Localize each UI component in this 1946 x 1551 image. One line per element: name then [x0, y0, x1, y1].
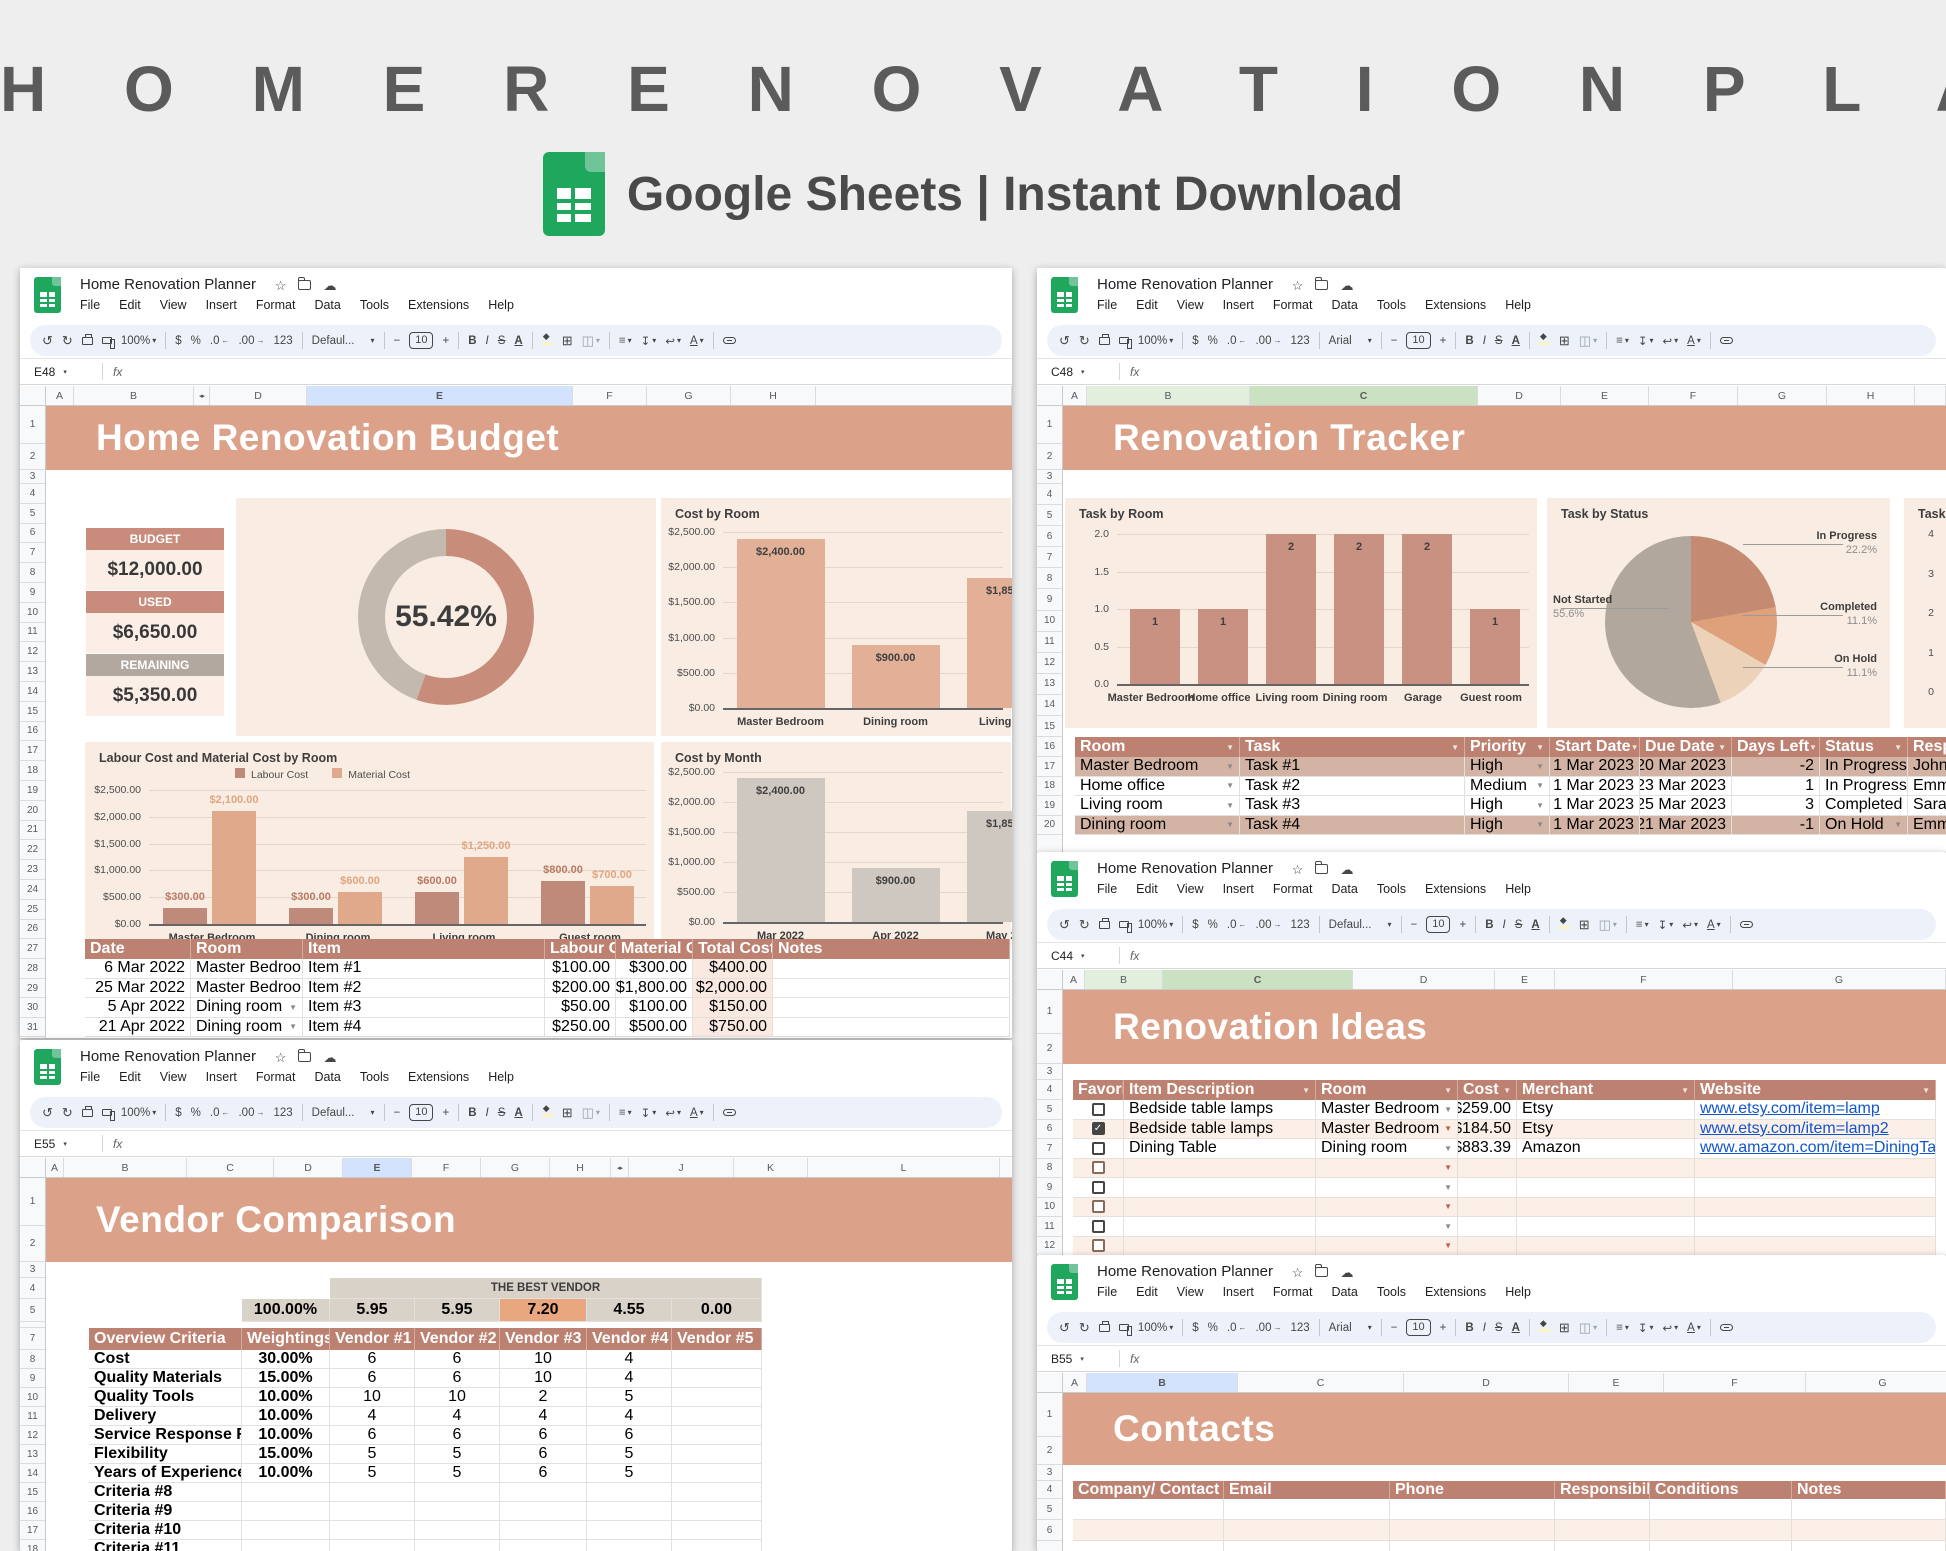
row-number[interactable]: 13 [1037, 674, 1062, 695]
table-cell[interactable]: John [1908, 757, 1946, 777]
name-box[interactable]: E55▾ [20, 1137, 92, 1151]
text-wrap-icon[interactable]: ↩ ▾ [1663, 334, 1679, 348]
table-cell[interactable]: Quality Materials [89, 1369, 242, 1388]
table-cell[interactable]: $150.00 [693, 998, 773, 1018]
more-number-formats-icon[interactable]: 123 [273, 335, 292, 347]
print-icon[interactable] [82, 1109, 93, 1117]
row-number[interactable]: 2 [1037, 1437, 1062, 1465]
dropdown-icon[interactable]: ▼ [1536, 801, 1544, 810]
text-color-icon[interactable]: A [1531, 919, 1539, 931]
row-number[interactable]: 26 [20, 920, 45, 940]
percent-format-icon[interactable]: % [1208, 1322, 1218, 1334]
table-cell[interactable]: $1,800.00 [616, 979, 693, 999]
vendor-score-cell[interactable]: 5.95 [415, 1299, 500, 1322]
table-cell[interactable] [1224, 1541, 1390, 1551]
insert-link-icon[interactable] [723, 1109, 736, 1116]
filter-icon[interactable]: ▼ [1226, 743, 1234, 752]
table-header-cell[interactable]: Room▼ [1316, 1080, 1458, 1100]
menu-item-extensions[interactable]: Extensions [1425, 882, 1486, 896]
dropdown-icon[interactable]: ▼ [1444, 1222, 1452, 1231]
table-cell[interactable] [330, 1521, 415, 1540]
font-select[interactable]: Defaul... ▾ [1329, 919, 1392, 931]
filter-icon[interactable]: ▼ [1922, 1086, 1930, 1095]
table-cell[interactable] [500, 1521, 587, 1540]
table-cell[interactable]: 4 [587, 1407, 672, 1426]
dropdown-icon[interactable]: ▼ [1444, 1124, 1452, 1133]
table-cell[interactable] [1555, 1520, 1650, 1541]
table-cell[interactable] [1224, 1520, 1390, 1541]
paint-format-icon[interactable] [1119, 337, 1129, 344]
table-cell[interactable] [1124, 1198, 1316, 1218]
decrease-font-size-icon[interactable]: − [394, 335, 401, 347]
dropdown-icon[interactable]: ▼ [1444, 1183, 1452, 1192]
table-cell[interactable] [1073, 1139, 1124, 1159]
row-number[interactable]: 1 [20, 406, 45, 444]
column-header-C[interactable]: C [187, 1158, 274, 1177]
row-number[interactable]: 3 [20, 470, 45, 484]
table-cell[interactable] [1650, 1499, 1792, 1520]
table-header-cell[interactable]: Responsible▼ [1908, 737, 1946, 757]
table-cell[interactable]: 4 [500, 1407, 587, 1426]
menu-item-view[interactable]: View [160, 1070, 187, 1084]
row-number[interactable]: 4 [1037, 484, 1062, 505]
table-cell[interactable] [1458, 1198, 1517, 1218]
dropdown-icon[interactable]: ▼ [1226, 801, 1234, 810]
table-cell[interactable]: ▼ [1316, 1159, 1458, 1179]
table-cell[interactable]: 6 [330, 1426, 415, 1445]
table-cell[interactable] [587, 1483, 672, 1502]
table-cell[interactable] [242, 1540, 330, 1551]
merge-cells-icon[interactable]: ◫▾ [1579, 333, 1597, 349]
increase-decimals-icon[interactable]: .00→ [1255, 1322, 1281, 1334]
column-header-F[interactable]: F [1649, 386, 1738, 405]
name-box[interactable]: B55▾ [1037, 1352, 1109, 1366]
table-cell[interactable] [672, 1521, 762, 1540]
menu-item-extensions[interactable]: Extensions [408, 1070, 469, 1084]
table-cell[interactable]: 10.00% [242, 1464, 330, 1483]
table-header-cell[interactable]: Vendor #4 [587, 1328, 672, 1350]
table-header-cell[interactable]: Vendor #3 [500, 1328, 587, 1350]
row-number[interactable]: 25 [20, 900, 45, 920]
text-wrap-icon[interactable]: ↩ ▾ [665, 334, 681, 348]
menu-item-edit[interactable]: Edit [1136, 298, 1158, 312]
decrease-font-size-icon[interactable]: − [1391, 335, 1398, 347]
table-cell[interactable]: 6 [330, 1350, 415, 1369]
strikethrough-icon[interactable]: S [1515, 919, 1523, 931]
row-number[interactable]: 17 [20, 741, 45, 761]
font-select[interactable]: Arial ▾ [1329, 335, 1372, 347]
column-header-F[interactable]: F [1664, 1373, 1806, 1392]
table-cell[interactable]: 20 Mar 2023 [1640, 757, 1732, 777]
table-cell[interactable]: Item #3 [303, 998, 545, 1018]
table-cell[interactable]: 10 [330, 1388, 415, 1407]
dropdown-icon[interactable]: ▼ [1226, 781, 1234, 790]
undo-icon[interactable]: ↺ [1059, 1320, 1070, 1336]
print-icon[interactable] [1099, 921, 1110, 929]
table-header-cell[interactable]: Date [85, 939, 191, 959]
table-cell[interactable] [773, 979, 1010, 999]
menu-item-format[interactable]: Format [256, 298, 296, 312]
undo-icon[interactable]: ↺ [1059, 917, 1070, 933]
column-header-J[interactable]: J [629, 1158, 734, 1177]
bold-icon[interactable]: B [468, 1107, 476, 1119]
table-header-cell[interactable]: Responsibilities [1555, 1481, 1650, 1499]
table-cell[interactable]: Completed▼ [1820, 796, 1908, 816]
table-cell[interactable] [1073, 1100, 1124, 1120]
row-number[interactable]: 29 [20, 979, 45, 999]
font-select[interactable]: Defaul... ▾ [312, 335, 375, 347]
column-header-B[interactable]: B [1087, 1373, 1238, 1392]
table-cell[interactable]: 5 [587, 1388, 672, 1407]
row-number[interactable]: 20 [1037, 816, 1062, 836]
column-header-G[interactable]: G [647, 386, 731, 405]
table-cell[interactable]: Dining room▼ [1316, 1139, 1458, 1159]
decrease-font-size-icon[interactable]: − [1391, 1322, 1398, 1334]
table-cell[interactable]: 25 Mar 2022 [85, 979, 191, 999]
table-cell[interactable]: Dining room▼ [191, 1018, 303, 1038]
table-cell[interactable]: 30.00% [242, 1350, 330, 1369]
table-cell[interactable] [1792, 1520, 1946, 1541]
row-number[interactable]: 15 [20, 1483, 45, 1502]
row-number[interactable]: 8 [1037, 1159, 1062, 1179]
table-cell[interactable]: 6 [330, 1369, 415, 1388]
row-number[interactable]: 30 [20, 998, 45, 1018]
column-header-D[interactable]: D [210, 386, 307, 405]
table-header-cell[interactable]: Phone [1390, 1481, 1555, 1499]
row-number[interactable]: 12 [20, 642, 45, 662]
table-cell[interactable]: 6 [587, 1426, 672, 1445]
table-cell[interactable]: $500.00 [616, 1018, 693, 1038]
row-number[interactable]: 6 [1037, 526, 1062, 547]
dropdown-icon[interactable]: ▼ [1226, 762, 1234, 771]
row-number[interactable]: 11 [20, 623, 45, 643]
table-cell[interactable] [1073, 1499, 1224, 1520]
merge-cells-icon[interactable]: ◫▾ [1599, 917, 1617, 933]
table-cell[interactable]: In Progress▼ [1820, 777, 1908, 797]
vendor-score-cell[interactable]: 100.00% [242, 1299, 330, 1322]
table-cell[interactable]: 6 [415, 1350, 500, 1369]
table-cell[interactable]: In Progress▼ [1820, 757, 1908, 777]
table-cell[interactable]: Task #2 [1240, 777, 1465, 797]
table-cell[interactable] [672, 1407, 762, 1426]
row-number[interactable]: 14 [1037, 695, 1062, 716]
table-cell[interactable] [1073, 1217, 1124, 1237]
table-cell[interactable] [500, 1540, 587, 1551]
insert-link-icon[interactable] [1720, 1324, 1733, 1331]
column-header-E[interactable]: E [1495, 970, 1555, 989]
redo-icon[interactable]: ↻ [1079, 333, 1090, 349]
decrease-decimals-icon[interactable]: .0← [210, 335, 230, 347]
row-number[interactable]: 3 [1037, 1064, 1062, 1080]
table-cell[interactable]: Task #4 [1240, 816, 1465, 836]
column-header-C[interactable]: C [1238, 1373, 1404, 1392]
row-number[interactable]: 2 [20, 444, 45, 470]
menu-item-format[interactable]: Format [256, 1070, 296, 1084]
table-cell[interactable]: 4 [587, 1350, 672, 1369]
text-color-icon[interactable]: A [514, 1107, 522, 1119]
table-cell[interactable] [1695, 1178, 1936, 1198]
row-number[interactable]: 5 [1037, 505, 1062, 526]
table-cell[interactable]: -2 [1732, 757, 1820, 777]
table-cell[interactable]: ▼ [1316, 1178, 1458, 1198]
table-header-cell[interactable]: Vendor #5 [672, 1328, 762, 1350]
table-cell[interactable]: 5 [415, 1464, 500, 1483]
table-cell[interactable] [1517, 1159, 1695, 1179]
table-cell[interactable] [1390, 1520, 1555, 1541]
table-cell[interactable] [672, 1502, 762, 1521]
table-cell[interactable]: Flexibility [89, 1445, 242, 1464]
redo-icon[interactable]: ↻ [62, 1105, 73, 1121]
currency-format-icon[interactable]: $ [175, 335, 181, 347]
favorite-checkbox[interactable] [1092, 1142, 1105, 1155]
table-cell[interactable] [1124, 1217, 1316, 1237]
table-cell[interactable] [1650, 1520, 1792, 1541]
currency-format-icon[interactable]: $ [175, 1107, 181, 1119]
table-cell[interactable]: 6 [415, 1369, 500, 1388]
move-to-folder-icon[interactable] [298, 280, 311, 290]
table-cell[interactable]: $50.00 [545, 998, 616, 1018]
table-cell[interactable] [1073, 1541, 1224, 1551]
row-number[interactable]: 2 [1037, 1034, 1062, 1064]
column-header-A[interactable]: A [1063, 970, 1085, 989]
menu-item-tools[interactable]: Tools [360, 1070, 389, 1084]
table-cell[interactable]: 6 [500, 1426, 587, 1445]
table-cell[interactable]: Item #4 [303, 1018, 545, 1038]
row-number[interactable]: 9 [1037, 589, 1062, 610]
text-color-icon[interactable]: A [514, 335, 522, 347]
select-all-corner[interactable] [1037, 970, 1063, 989]
column-header-A[interactable]: A [1063, 386, 1087, 405]
row-number[interactable]: 11 [1037, 1217, 1062, 1237]
column-header-D[interactable]: D [1404, 1373, 1569, 1392]
horizontal-align-icon[interactable]: ≡ ▾ [619, 1107, 632, 1119]
decrease-decimals-icon[interactable]: .0← [1227, 335, 1247, 347]
table-cell[interactable]: 10.00% [242, 1407, 330, 1426]
table-cell[interactable]: Cost [89, 1350, 242, 1369]
more-number-formats-icon[interactable]: 123 [1290, 919, 1309, 931]
menu-item-format[interactable]: Format [1273, 882, 1313, 896]
column-header-B[interactable]: B [64, 1158, 187, 1177]
table-cell[interactable] [1124, 1237, 1316, 1256]
increase-font-size-icon[interactable]: + [1440, 335, 1447, 347]
table-cell[interactable]: 5 [415, 1445, 500, 1464]
italic-icon[interactable]: I [1483, 335, 1486, 347]
borders-icon[interactable]: ⊞ [562, 333, 573, 349]
increase-font-size-icon[interactable]: + [1440, 1322, 1447, 1334]
column-header-F[interactable]: F [1555, 970, 1733, 989]
more-number-formats-icon[interactable]: 123 [1290, 335, 1309, 347]
increase-decimals-icon[interactable]: .00→ [1255, 335, 1281, 347]
fill-color-icon[interactable] [1559, 920, 1570, 929]
menu-item-extensions[interactable]: Extensions [408, 298, 469, 312]
print-icon[interactable] [82, 337, 93, 345]
menu-item-tools[interactable]: Tools [1377, 1285, 1406, 1299]
increase-decimals-icon[interactable]: .00→ [1255, 919, 1281, 931]
insert-link-icon[interactable] [1720, 337, 1733, 344]
vendor-score-cell[interactable]: 0.00 [672, 1299, 762, 1322]
move-to-folder-icon[interactable] [298, 1052, 311, 1062]
table-header-cell[interactable]: Email [1224, 1481, 1390, 1499]
row-number[interactable]: 1 [1037, 990, 1062, 1034]
row-number[interactable]: 18 [20, 761, 45, 781]
table-header-cell[interactable]: Notes [773, 939, 1010, 959]
menu-item-insert[interactable]: Insert [1223, 882, 1254, 896]
paint-format-icon[interactable] [1119, 1324, 1129, 1331]
favorite-checkbox[interactable] [1092, 1239, 1105, 1252]
move-to-folder-icon[interactable] [1315, 280, 1328, 290]
table-cell[interactable]: Item #2 [303, 979, 545, 999]
table-cell[interactable]: $400.00 [693, 959, 773, 979]
table-cell[interactable] [1073, 1178, 1124, 1198]
strikethrough-icon[interactable]: S [1495, 1322, 1503, 1334]
row-number[interactable]: 27 [20, 939, 45, 959]
select-all-corner[interactable] [20, 386, 46, 405]
column-header-H[interactable]: H [731, 386, 816, 405]
dropdown-icon[interactable]: ▼ [1444, 1163, 1452, 1172]
table-cell[interactable]: -1 [1732, 816, 1820, 836]
row-number[interactable]: 16 [1037, 737, 1062, 757]
table-cell[interactable]: Criteria #10 [89, 1521, 242, 1540]
table-cell[interactable] [1517, 1198, 1695, 1218]
row-number[interactable]: 8 [20, 1350, 45, 1369]
table-header-cell[interactable]: Item [303, 939, 545, 959]
table-cell[interactable]: 1 Mar 2023 [1550, 757, 1640, 777]
table-cell[interactable]: Dining room▼ [1075, 816, 1240, 836]
table-cell[interactable]: High▼ [1465, 816, 1550, 836]
table-cell[interactable]: $200.00 [545, 979, 616, 999]
table-cell[interactable]: Service Response Rate [89, 1426, 242, 1445]
row-number[interactable]: 31 [20, 1018, 45, 1038]
row-number[interactable]: 17 [20, 1521, 45, 1540]
table-cell[interactable]: $750.00 [693, 1018, 773, 1038]
undo-icon[interactable]: ↺ [42, 1105, 53, 1121]
table-cell[interactable]: 5 [587, 1464, 672, 1483]
table-cell[interactable]: Sarah [1908, 796, 1946, 816]
increase-font-size-icon[interactable]: + [442, 335, 449, 347]
table-cell[interactable] [415, 1540, 500, 1551]
favorite-checkbox[interactable] [1092, 1200, 1105, 1213]
more-number-formats-icon[interactable]: 123 [273, 1107, 292, 1119]
table-cell[interactable]: Quality Tools [89, 1388, 242, 1407]
menu-item-view[interactable]: View [1177, 882, 1204, 896]
horizontal-align-icon[interactable]: ≡ ▾ [1616, 1322, 1629, 1334]
table-header-cell[interactable]: Start Date▼ [1550, 737, 1640, 757]
table-header-cell[interactable]: Company/ Contact Name [1073, 1481, 1224, 1499]
column-header-E[interactable]: E [1561, 386, 1649, 405]
name-box[interactable]: C44▾ [1037, 949, 1109, 963]
table-cell[interactable]: Criteria #11 [89, 1540, 242, 1551]
table-cell[interactable]: 4 [587, 1369, 672, 1388]
table-cell[interactable]: ▼ [1316, 1198, 1458, 1218]
strikethrough-icon[interactable]: S [1495, 335, 1503, 347]
favorite-checkbox[interactable] [1092, 1161, 1105, 1174]
table-cell[interactable]: Medium▼ [1465, 777, 1550, 797]
horizontal-align-icon[interactable]: ≡ ▾ [1636, 919, 1649, 931]
menu-item-edit[interactable]: Edit [119, 298, 141, 312]
table-cell[interactable]: Criteria #8 [89, 1483, 242, 1502]
undo-icon[interactable]: ↺ [42, 333, 53, 349]
table-header-cell[interactable]: Labour Cost [545, 939, 616, 959]
table-cell[interactable]: Home office▼ [1075, 777, 1240, 797]
table-cell[interactable]: 5 [587, 1445, 672, 1464]
table-cell[interactable] [1517, 1217, 1695, 1237]
menu-item-file[interactable]: File [1097, 882, 1117, 896]
row-number[interactable]: 8 [1037, 568, 1062, 589]
table-cell[interactable]: Master Bedroom▼ [1316, 1120, 1458, 1140]
table-cell[interactable]: 21 Mar 2023 [1640, 816, 1732, 836]
italic-icon[interactable]: I [486, 1107, 489, 1119]
column-header-A[interactable]: A [46, 1158, 64, 1177]
menu-item-edit[interactable]: Edit [1136, 882, 1158, 896]
row-number[interactable]: 1 [20, 1178, 45, 1226]
name-box[interactable]: E48▾ [20, 365, 92, 379]
text-wrap-icon[interactable]: ↩ ▾ [1682, 918, 1698, 932]
increase-font-size-icon[interactable]: + [1459, 919, 1466, 931]
table-header-cell[interactable]: Vendor #2 [415, 1328, 500, 1350]
table-cell[interactable]: Dining room▼ [191, 998, 303, 1018]
increase-font-size-icon[interactable]: + [442, 1107, 449, 1119]
table-cell[interactable] [242, 1502, 330, 1521]
increase-decimals-icon[interactable]: .00→ [238, 1107, 264, 1119]
merge-cells-icon[interactable]: ◫▾ [582, 1105, 600, 1121]
table-cell[interactable] [1792, 1499, 1946, 1520]
borders-icon[interactable]: ⊞ [1579, 917, 1590, 933]
table-header-cell[interactable]: Due Date▼ [1640, 737, 1732, 757]
table-cell[interactable]: 23 Mar 2023 [1640, 777, 1732, 797]
dropdown-icon[interactable]: ▼ [1444, 1202, 1452, 1211]
table-cell[interactable]: High▼ [1465, 757, 1550, 777]
decrease-decimals-icon[interactable]: .0← [1227, 919, 1247, 931]
row-number[interactable]: 2 [20, 1226, 45, 1262]
filter-icon[interactable]: ▼ [1809, 743, 1817, 752]
percent-format-icon[interactable]: % [191, 1107, 201, 1119]
column-header-x[interactable] [1915, 386, 1946, 405]
table-cell[interactable]: Bedside table lamps [1124, 1100, 1316, 1120]
fill-color-icon[interactable] [1539, 336, 1550, 345]
table-cell[interactable]: Master Bedroom▼ [1075, 757, 1240, 777]
row-number[interactable]: 7 [1037, 547, 1062, 568]
table-cell[interactable] [1458, 1237, 1517, 1256]
table-cell[interactable]: 5 Apr 2022 [85, 998, 191, 1018]
row-number[interactable]: 28 [20, 959, 45, 979]
borders-icon[interactable]: ⊞ [562, 1105, 573, 1121]
font-size-input[interactable]: 10 [409, 332, 433, 349]
table-cell[interactable]: Amazon [1517, 1139, 1695, 1159]
filter-icon[interactable]: ▼ [1718, 743, 1726, 752]
table-cell[interactable]: 1 [1732, 777, 1820, 797]
column-header-H[interactable]: H [550, 1158, 611, 1177]
table-cell[interactable]: 10 [500, 1350, 587, 1369]
table-cell[interactable]: 21 Apr 2022 [85, 1018, 191, 1038]
fill-color-icon[interactable] [542, 1108, 553, 1117]
table-cell[interactable] [1073, 1198, 1124, 1218]
column-header-K[interactable]: K [734, 1158, 808, 1177]
column-header-L[interactable]: L [808, 1158, 1000, 1177]
column-header-x[interactable] [816, 386, 1012, 405]
row-number[interactable]: 14 [20, 1464, 45, 1483]
row-number[interactable]: 3 [1037, 1465, 1062, 1481]
table-cell[interactable]: Bedside table lamps [1124, 1120, 1316, 1140]
table-cell[interactable] [672, 1388, 762, 1407]
table-cell[interactable] [672, 1369, 762, 1388]
menu-item-help[interactable]: Help [488, 1070, 514, 1084]
dropdown-icon[interactable]: ▼ [1444, 1144, 1452, 1153]
bold-icon[interactable]: B [1465, 335, 1473, 347]
vertical-align-icon[interactable]: ↧ ▾ [641, 334, 657, 348]
table-header-cell[interactable]: Vendor #1 [330, 1328, 415, 1350]
table-cell[interactable] [330, 1483, 415, 1502]
menu-item-insert[interactable]: Insert [206, 1070, 237, 1084]
